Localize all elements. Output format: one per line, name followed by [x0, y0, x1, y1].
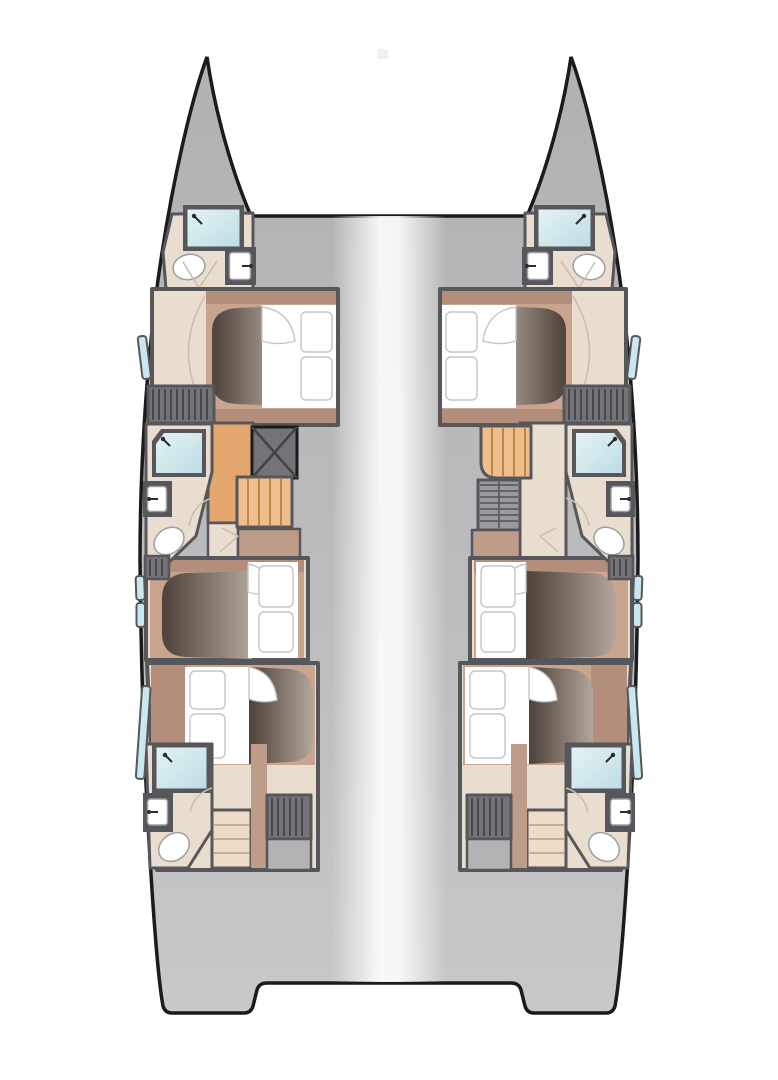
pillow: [259, 566, 293, 607]
engine-hatch: [467, 795, 511, 870]
berth-side-trim: [251, 744, 267, 868]
print-artifact: [377, 49, 388, 59]
double-berth-mattress: [526, 571, 616, 659]
faucet-icon: [249, 264, 253, 268]
port-companionway: [208, 423, 300, 558]
pillow: [470, 714, 505, 758]
hull-window: [137, 603, 146, 627]
starboard-companionway: [472, 423, 566, 558]
port-mid-locker: [145, 556, 169, 579]
sink: [143, 793, 173, 832]
starboard-mid-locker: [609, 556, 633, 579]
faucet-icon: [627, 810, 631, 814]
pillow: [481, 566, 515, 607]
pillow: [446, 312, 477, 352]
starboard-forward-head: [522, 205, 615, 289]
bridge-deck-highlight: [332, 216, 446, 982]
faucet-icon: [627, 497, 631, 501]
pillow: [301, 357, 332, 400]
hull-window: [633, 603, 642, 627]
pillow: [481, 612, 515, 652]
starboard-mid-cabin: [470, 558, 632, 660]
sink: [143, 481, 172, 517]
pillow: [301, 312, 332, 352]
faucet-icon: [525, 264, 529, 268]
engine-hatch: [267, 795, 311, 870]
shower: [572, 429, 626, 477]
stair-base: [238, 529, 300, 558]
pillow: [190, 671, 225, 709]
stair-base: [472, 530, 520, 558]
port-forward-head: [163, 205, 256, 289]
faucet-icon: [147, 810, 151, 814]
port-wardrobe-locker: [148, 386, 214, 423]
pillow: [446, 357, 477, 400]
shower: [183, 205, 244, 251]
shower: [152, 743, 211, 793]
pillow: [470, 671, 505, 709]
sink: [606, 481, 635, 517]
faucet-icon: [147, 497, 151, 501]
companionway-stairs: [237, 477, 292, 527]
double-berth-mattress: [162, 571, 252, 659]
shower: [567, 743, 626, 793]
port-mid-cabin: [146, 558, 308, 660]
sink: [522, 247, 553, 285]
floor-plan-page: [0, 0, 778, 1080]
shower: [534, 205, 595, 251]
starboard-wardrobe-locker: [564, 386, 630, 423]
sink: [225, 247, 256, 285]
hull-window: [633, 576, 642, 600]
floor-plan-canvas: [0, 0, 778, 1080]
companionway-stairs: [481, 426, 531, 478]
shower: [152, 429, 206, 477]
sink: [605, 793, 635, 832]
pillow: [259, 612, 293, 652]
hull-window: [136, 576, 145, 600]
berth-side-trim: [511, 744, 527, 868]
